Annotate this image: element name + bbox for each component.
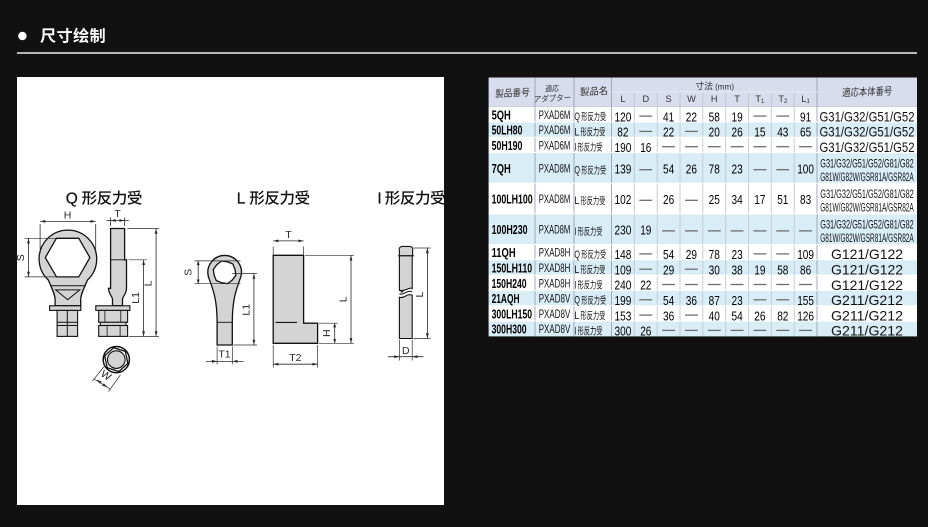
svg-text:40: 40 — [709, 308, 720, 323]
svg-text:100: 100 — [797, 162, 814, 177]
svg-text:29: 29 — [663, 262, 674, 277]
svg-text:L1: L1 — [240, 304, 252, 316]
svg-text:PXAD8M: PXAD8M — [539, 224, 571, 237]
svg-text:300: 300 — [615, 324, 632, 339]
svg-text:51: 51 — [777, 192, 788, 207]
svg-text:Q: Q — [574, 111, 580, 123]
svg-text:I: I — [574, 142, 576, 154]
svg-text:PXAD8H: PXAD8H — [539, 277, 571, 290]
svg-text:G211/G212: G211/G212 — [831, 308, 903, 323]
svg-text:11QH: 11QH — [492, 245, 516, 260]
svg-text:G31/G32/G51/G52: G31/G32/G51/G52 — [820, 109, 915, 124]
svg-text:86: 86 — [800, 262, 811, 277]
svg-text:D: D — [642, 94, 649, 104]
svg-text:22: 22 — [640, 278, 651, 293]
svg-text:G211/G212: G211/G212 — [831, 293, 903, 308]
svg-text:G121/G122: G121/G122 — [831, 247, 903, 262]
svg-text:L: L — [574, 310, 579, 322]
svg-text:16: 16 — [640, 140, 651, 155]
svg-text:H: H — [321, 329, 333, 337]
svg-text:54: 54 — [663, 162, 674, 177]
svg-text:87: 87 — [709, 293, 720, 308]
svg-text:I: I — [574, 226, 576, 238]
svg-text:41: 41 — [663, 109, 674, 124]
svg-text:G81W/G82W/GSR81A/GSR82A: G81W/G82W/GSR81A/GSR82A — [820, 201, 914, 215]
svg-text:153: 153 — [615, 308, 632, 323]
svg-text:20: 20 — [709, 125, 720, 140]
svg-text:Q: Q — [574, 165, 580, 177]
svg-text:G211/G212: G211/G212 — [831, 324, 903, 339]
svg-text:43: 43 — [777, 125, 788, 140]
svg-text:23: 23 — [732, 247, 743, 262]
svg-text:G31/G32/G51/G52: G31/G32/G51/G52 — [820, 140, 915, 155]
svg-text:S: S — [15, 254, 27, 261]
svg-text:H: H — [64, 210, 72, 222]
svg-text:15: 15 — [754, 125, 765, 140]
svg-text:50LH80: 50LH80 — [492, 123, 523, 138]
svg-text:PXAD8M: PXAD8M — [539, 162, 571, 175]
svg-text:I: I — [377, 191, 381, 208]
svg-text:L: L — [338, 296, 350, 302]
svg-text:L: L — [414, 292, 426, 298]
svg-text:G81W/G82W/GSR81A/GSR82A: G81W/G82W/GSR81A/GSR82A — [820, 231, 914, 245]
svg-text:W: W — [687, 94, 696, 104]
svg-text:T2: T2 — [289, 352, 301, 364]
svg-text:26: 26 — [754, 308, 765, 323]
svg-text:PXAD6M: PXAD6M — [539, 139, 571, 152]
svg-text:Q: Q — [66, 191, 78, 208]
svg-text:19: 19 — [754, 262, 765, 277]
svg-text:54: 54 — [663, 293, 674, 308]
svg-text:150LH110: 150LH110 — [492, 260, 532, 275]
svg-text:L: L — [574, 126, 579, 138]
svg-text:PXAD8V: PXAD8V — [539, 308, 571, 321]
svg-text:100LH100: 100LH100 — [492, 192, 533, 207]
svg-text:PXAD8H: PXAD8H — [539, 247, 571, 260]
svg-text:21AQH: 21AQH — [492, 291, 520, 306]
svg-text:PXAD8V: PXAD8V — [539, 293, 571, 306]
svg-text:126: 126 — [797, 308, 814, 323]
svg-text:120: 120 — [615, 109, 632, 124]
svg-text:25: 25 — [709, 192, 720, 207]
svg-text:300H300: 300H300 — [492, 322, 527, 337]
svg-text:7QH: 7QH — [492, 161, 511, 176]
svg-text:23: 23 — [732, 162, 743, 177]
svg-text:PXAD6M: PXAD6M — [539, 124, 571, 137]
svg-text:58: 58 — [709, 109, 720, 124]
svg-text:G31/G32/G51/G52/G81/G82: G31/G32/G51/G52/G81/G82 — [820, 156, 914, 170]
svg-text:190: 190 — [615, 140, 632, 155]
svg-text:83: 83 — [800, 192, 811, 207]
svg-text:22: 22 — [663, 125, 674, 140]
svg-text:22: 22 — [686, 109, 697, 124]
svg-text:G121/G122: G121/G122 — [831, 263, 903, 278]
svg-text:100H230: 100H230 — [492, 222, 528, 237]
svg-text:91: 91 — [800, 109, 811, 124]
svg-text:PXAD6M: PXAD6M — [539, 109, 571, 122]
svg-text:G31/G32/G51/G52: G31/G32/G51/G52 — [820, 125, 915, 140]
svg-text:S: S — [182, 269, 194, 276]
svg-text:G31/G32/G51/G52/G81/G82: G31/G32/G51/G52/G81/G82 — [820, 218, 914, 232]
svg-text:102: 102 — [615, 192, 632, 207]
svg-text:PXAD8M: PXAD8M — [539, 193, 571, 206]
svg-text:L: L — [574, 264, 579, 276]
svg-text:26: 26 — [663, 192, 674, 207]
svg-text:50H190: 50H190 — [492, 138, 523, 153]
svg-text:T: T — [114, 208, 121, 220]
svg-text:G31/G32/G51/G52/G81/G82: G31/G32/G51/G52/G81/G82 — [820, 187, 914, 201]
svg-text:L: L — [574, 195, 579, 207]
svg-text:36: 36 — [686, 293, 697, 308]
svg-text:54: 54 — [663, 247, 674, 262]
svg-text:26: 26 — [640, 324, 651, 339]
svg-text:34: 34 — [732, 192, 743, 207]
svg-text:Q: Q — [574, 249, 580, 261]
svg-text:L: L — [143, 280, 155, 286]
svg-text:Q: Q — [574, 295, 580, 307]
svg-text:78: 78 — [709, 247, 720, 262]
svg-text:300LH150: 300LH150 — [492, 306, 532, 321]
svg-text:I: I — [574, 325, 576, 337]
svg-text:36: 36 — [663, 308, 674, 323]
svg-text:T: T — [285, 229, 292, 241]
svg-text:T1: T1 — [218, 349, 230, 361]
svg-text:199: 199 — [615, 293, 632, 308]
svg-text:240: 240 — [615, 278, 632, 293]
svg-text:150H240: 150H240 — [492, 276, 527, 291]
svg-text:230: 230 — [615, 223, 632, 238]
svg-text:155: 155 — [797, 293, 814, 308]
svg-text:PXAD8H: PXAD8H — [539, 262, 571, 275]
svg-text:L1: L1 — [130, 292, 142, 304]
svg-text:L: L — [237, 191, 246, 208]
svg-text:139: 139 — [615, 162, 632, 177]
svg-text:D: D — [402, 345, 410, 357]
svg-text:58: 58 — [777, 262, 788, 277]
svg-text:82: 82 — [617, 125, 628, 140]
svg-text:38: 38 — [732, 262, 743, 277]
svg-text:17: 17 — [754, 192, 765, 207]
svg-text:19: 19 — [640, 223, 651, 238]
svg-text:148: 148 — [615, 247, 632, 262]
svg-text:23: 23 — [732, 293, 743, 308]
svg-text:109: 109 — [615, 262, 632, 277]
svg-text:S: S — [666, 94, 672, 104]
svg-text:65: 65 — [800, 125, 811, 140]
svg-text:L: L — [620, 94, 625, 104]
svg-text:I: I — [574, 279, 576, 291]
svg-text:G121/G122: G121/G122 — [831, 278, 903, 293]
svg-text:29: 29 — [686, 247, 697, 262]
svg-text:54: 54 — [732, 308, 743, 323]
svg-text:26: 26 — [732, 125, 743, 140]
svg-text:26: 26 — [686, 162, 697, 177]
svg-text:H: H — [711, 94, 718, 104]
svg-text:82: 82 — [777, 308, 788, 323]
svg-text:T: T — [734, 94, 740, 104]
svg-text:5QH: 5QH — [492, 107, 511, 122]
svg-text:109: 109 — [797, 247, 814, 262]
svg-text:78: 78 — [709, 162, 720, 177]
svg-text:G81W/G82W/GSR81A/GSR82A: G81W/G82W/GSR81A/GSR82A — [820, 170, 914, 184]
svg-text:30: 30 — [709, 262, 720, 277]
svg-text:(mm): (mm) — [715, 82, 734, 91]
svg-text:PXAD8V: PXAD8V — [539, 323, 571, 336]
svg-text:19: 19 — [732, 109, 743, 124]
